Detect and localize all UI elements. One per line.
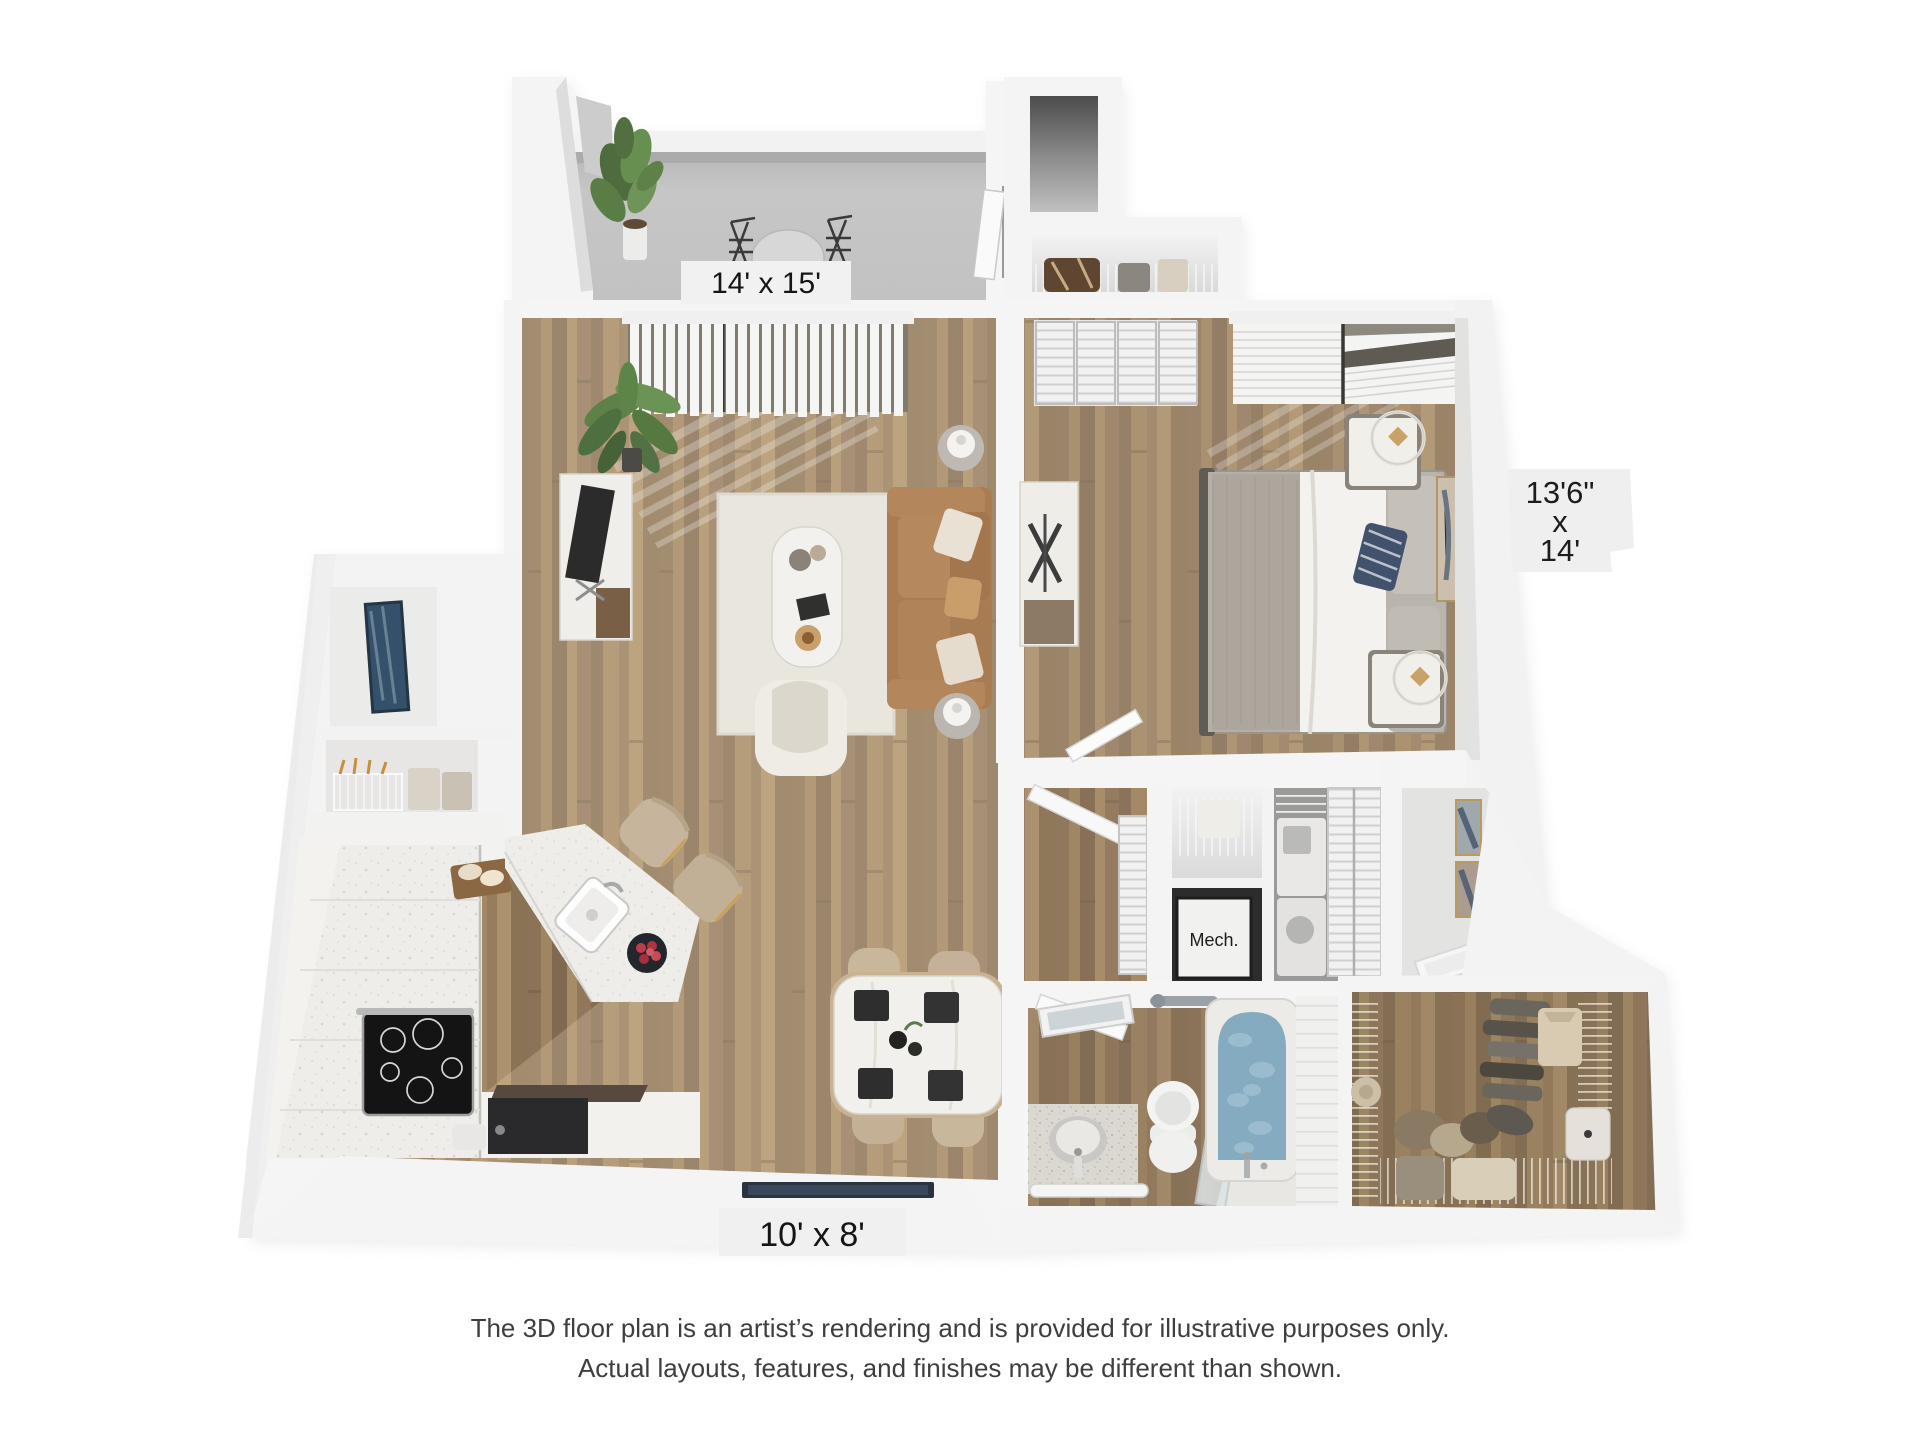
svg-text:14' x 15': 14' x 15' [711, 267, 821, 300]
svg-text:10' x 8': 10' x 8' [759, 1216, 865, 1254]
svg-text:Mech.: Mech. [1189, 930, 1238, 950]
svg-text:Actual layouts, features, and: Actual layouts, features, and finishes m… [578, 1353, 1342, 1383]
svg-text:14': 14' [1540, 533, 1580, 568]
svg-text:The 3D floor plan is an artist: The 3D floor plan is an artist’s renderi… [471, 1313, 1450, 1343]
